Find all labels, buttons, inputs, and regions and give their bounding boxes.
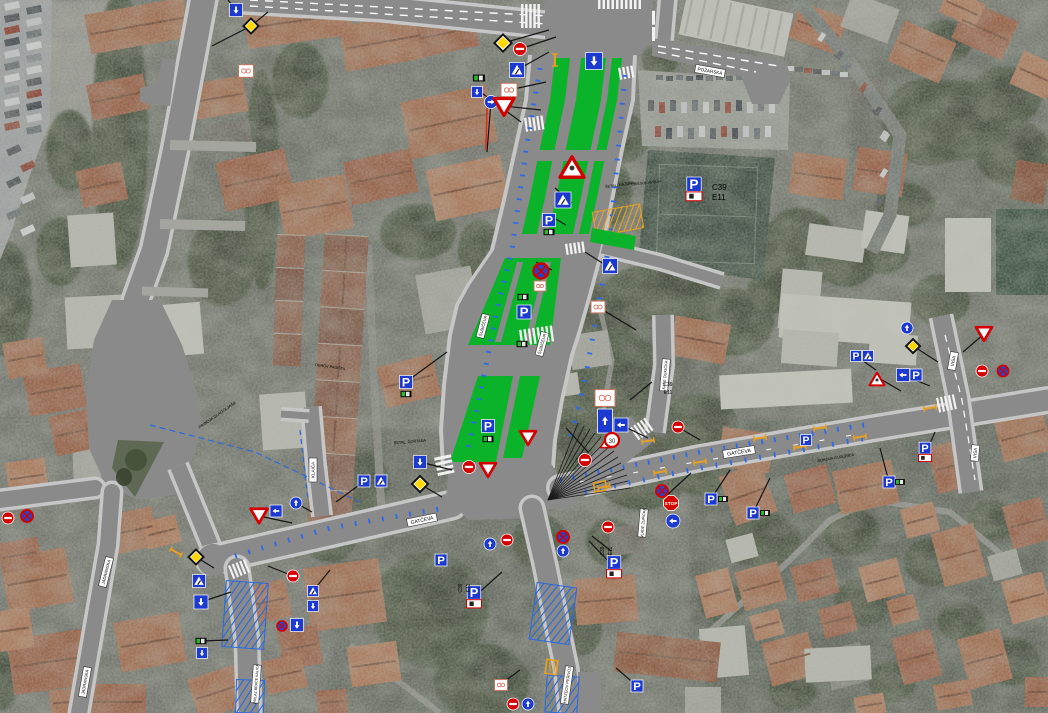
svg-text:C39: C39 [458,583,464,592]
svg-text:P: P [610,555,619,570]
svg-text:P: P [749,508,757,520]
svg-text:30: 30 [609,439,616,445]
svg-text:P: P [360,476,368,488]
svg-text:P: P [803,436,810,447]
svg-text:E11: E11 [466,584,472,593]
svg-text:E11: E11 [664,390,673,396]
svg-text:P: P [437,555,445,567]
svg-text:P: P [520,305,529,320]
svg-text:C39: C39 [600,546,606,555]
svg-text:P: P [402,375,410,389]
svg-text:STOP: STOP [665,501,679,507]
svg-text:P: P [633,681,641,693]
svg-text:P: P [545,213,553,227]
svg-text:P: P [689,177,698,192]
svg-text:P: P [912,370,920,382]
svg-text:VISA: VISA [972,447,978,459]
svg-text:KLAIĆA: KLAIĆA [310,461,316,478]
svg-text:P: P [853,352,860,363]
svg-text:P: P [921,443,929,455]
svg-text:P: P [885,477,893,489]
svg-text:P: P [707,494,715,506]
svg-text:E11: E11 [712,193,726,202]
svg-text:P: P [484,419,492,433]
svg-text:E11: E11 [608,547,614,556]
svg-text:C39: C39 [712,183,727,192]
svg-text:C39: C39 [663,382,672,388]
